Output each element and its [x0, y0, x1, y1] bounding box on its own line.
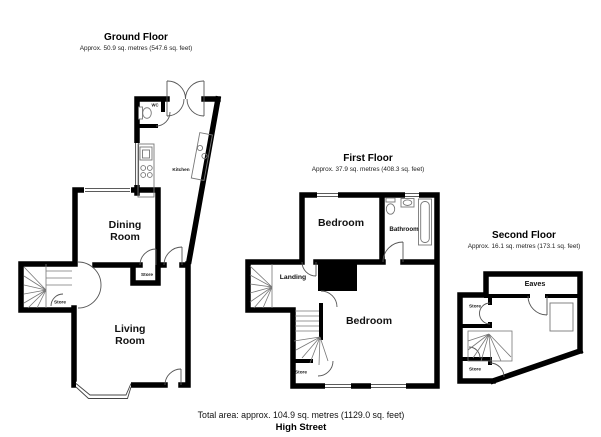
ground-floor-title: Ground Floor — [36, 32, 236, 44]
first-floor-title: First Floor — [268, 153, 468, 165]
footer: Total area: approx. 104.9 sq. metres (11… — [101, 410, 501, 434]
chimney-breast — [318, 260, 357, 292]
bedroom-back-door — [321, 291, 337, 307]
street-name: High Street — [101, 422, 501, 434]
second-floor-title: Second Floor — [424, 230, 601, 242]
sink-icon — [401, 199, 414, 208]
second-floor-plan: Eaves Store Store — [460, 274, 580, 381]
toilet-icon — [386, 198, 395, 214]
store-lower-door — [490, 363, 504, 377]
first-floor-plan: Bedroom Bathroom Landing Bedroom Store — [248, 192, 437, 389]
store-upper-bifold-door — [480, 303, 491, 324]
room-label-store-lower: Store — [469, 367, 481, 372]
hob-icon — [141, 166, 152, 178]
french-doors — [167, 81, 204, 116]
eaves-door — [528, 296, 547, 315]
floorplan-drawing: WC Kitchen Dining Room Living Room Store… — [0, 0, 601, 437]
room-label-bedroom-back: Bedroom — [346, 315, 392, 327]
room-label-landing: Landing — [280, 274, 306, 281]
floorplan-page: WC Kitchen Dining Room Living Room Store… — [0, 0, 601, 437]
room-label-living-1: Living — [115, 323, 146, 335]
room-label-dining-2: Room — [110, 231, 140, 243]
room-label-store-hall: Store — [141, 272, 153, 277]
room-label-bedroom-front: Bedroom — [318, 217, 364, 229]
roof-window-icon — [550, 303, 573, 331]
first-store-door — [318, 361, 333, 376]
first-floor-area: Approx. 37.9 sq. metres (408.3 sq. feet) — [268, 166, 468, 173]
second-stairs-icon — [468, 331, 512, 361]
landing-stairs-icon — [250, 264, 272, 308]
wc-door — [156, 112, 170, 126]
room-label-bathroom: Bathroom — [389, 226, 419, 233]
sink-icon — [197, 145, 202, 150]
room-label-eaves: Eaves — [525, 279, 546, 288]
dining-living-door — [78, 262, 101, 308]
room-label-first-store: Store — [295, 370, 307, 375]
bathroom-door — [383, 242, 403, 262]
room-label-wc: WC — [152, 103, 159, 108]
ground-floor-area: Approx. 50.9 sq. metres (547.6 sq. feet) — [36, 45, 236, 52]
ground-floor-title-block: Ground Floor Approx. 50.9 sq. metres (54… — [36, 32, 236, 52]
total-area-text: Total area: approx. 104.9 sq. metres (11… — [101, 410, 501, 421]
first-floor-title-block: First Floor Approx. 37.9 sq. metres (408… — [268, 153, 468, 173]
room-label-store-upper: Store — [469, 304, 481, 309]
room-label-living-2: Room — [115, 335, 145, 347]
room-label-dining-1: Dining — [109, 219, 142, 231]
toilet-icon — [139, 107, 152, 119]
room-label-kitchen: Kitchen — [172, 167, 189, 172]
second-floor-area: Approx. 16.1 sq. metres (173.1 sq. feet) — [424, 243, 601, 250]
ground-floor-plan: WC Kitchen Dining Room Living Room Store… — [21, 81, 218, 399]
second-floor-title-block: Second Floor Approx. 16.1 sq. metres (17… — [424, 230, 601, 250]
room-label-store-stairs: Store — [54, 300, 66, 305]
